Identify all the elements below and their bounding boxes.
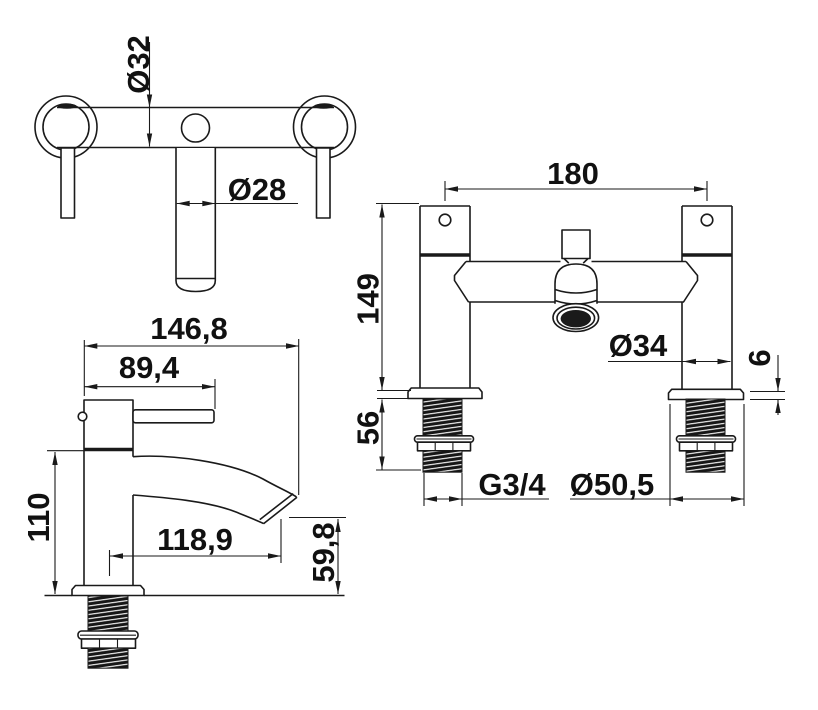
side-base-flange (72, 586, 144, 596)
left-handle-index-mark (58, 104, 77, 109)
side-handle-cap (84, 400, 133, 449)
right-pillar-screw-hole (701, 214, 713, 226)
side-indicator-dot (78, 412, 87, 421)
spout-nozzle-opening (561, 310, 591, 327)
dim-label-pillar-diameter: Ø34 (609, 328, 668, 363)
right-tail-thread-upper (686, 399, 725, 436)
plan-cartridge-circle (182, 114, 210, 142)
dim-label-flange-diameter: Ø50,5 (570, 467, 654, 502)
side-lever-handle (133, 410, 214, 423)
right-handle-index-mark (314, 104, 333, 109)
left-tail-backnut (418, 442, 471, 451)
left-handle-lever (61, 148, 75, 218)
technical-drawing-canvas: Ø32 Ø28 (0, 0, 818, 710)
plan-spout (176, 148, 215, 292)
dim-label-overall-depth: 146,8 (150, 311, 228, 346)
right-handle-lever (317, 148, 331, 218)
dim-label-tail-length: 56 (351, 411, 386, 445)
right-flange (669, 389, 744, 399)
left-tail-thread-upper (423, 399, 462, 436)
right-tail-thread-lower (686, 451, 725, 472)
dim-label-plan-spout-diameter: Ø28 (228, 172, 287, 207)
dim-label-flange-thickness: 6 (742, 349, 777, 366)
dim-label-spout-reach: 118,9 (157, 522, 233, 557)
dim-label-spout-height: 59,8 (306, 522, 341, 582)
dim-label-handle-reach: 89,4 (119, 350, 180, 385)
dim-label-front-height: 149 (351, 273, 386, 325)
side-threaded-tail-upper (88, 596, 128, 632)
side-backnut (82, 639, 136, 648)
dim-label-body-height: 110 (21, 492, 56, 542)
right-tail-backnut (680, 442, 733, 451)
side-threaded-tail-lower (88, 648, 128, 668)
dim-label-plan-body-diameter: Ø32 (121, 35, 156, 94)
dim-label-thread-size: G3/4 (478, 467, 546, 502)
tap-technical-drawing: Ø32 Ø28 (0, 0, 818, 710)
shower-outlet-block (562, 230, 590, 259)
left-pillar-screw-hole (439, 214, 451, 226)
left-tail-thread-lower (423, 451, 462, 472)
centre-spout-dome (555, 264, 597, 304)
dim-label-centres: 180 (547, 156, 599, 191)
left-flange (408, 388, 482, 399)
